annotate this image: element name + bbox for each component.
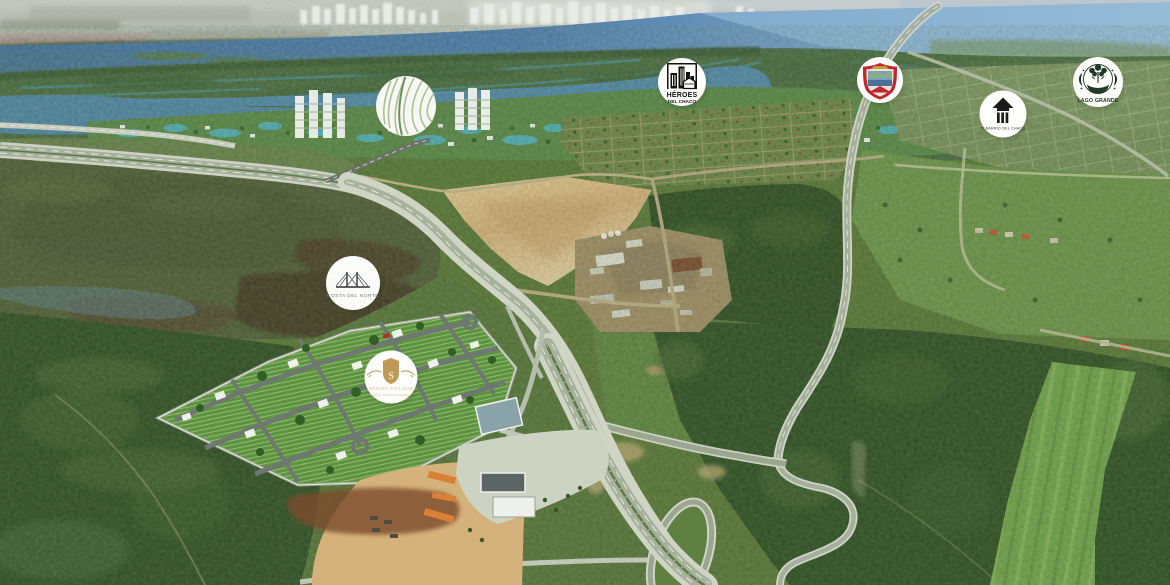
svg-text:SUNSET VILLAGE: SUNSET VILLAGE [369, 386, 413, 391]
svg-text:COSTA DEL NORTE: COSTA DEL NORTE [327, 293, 379, 299]
svg-text:LAGO GRANDE: LAGO GRANDE [1077, 98, 1118, 104]
svg-text:DEL CHACO: DEL CHACO [668, 99, 697, 105]
svg-text:HÉROES: HÉROES [667, 90, 698, 99]
svg-text:S: S [388, 371, 394, 382]
svg-text:BARRIO CERRADO PREMIUM: BARRIO CERRADO PREMIUM [370, 394, 412, 397]
svg-text:5º BARRIO DEL CHACO: 5º BARRIO DEL CHACO [981, 127, 1026, 131]
